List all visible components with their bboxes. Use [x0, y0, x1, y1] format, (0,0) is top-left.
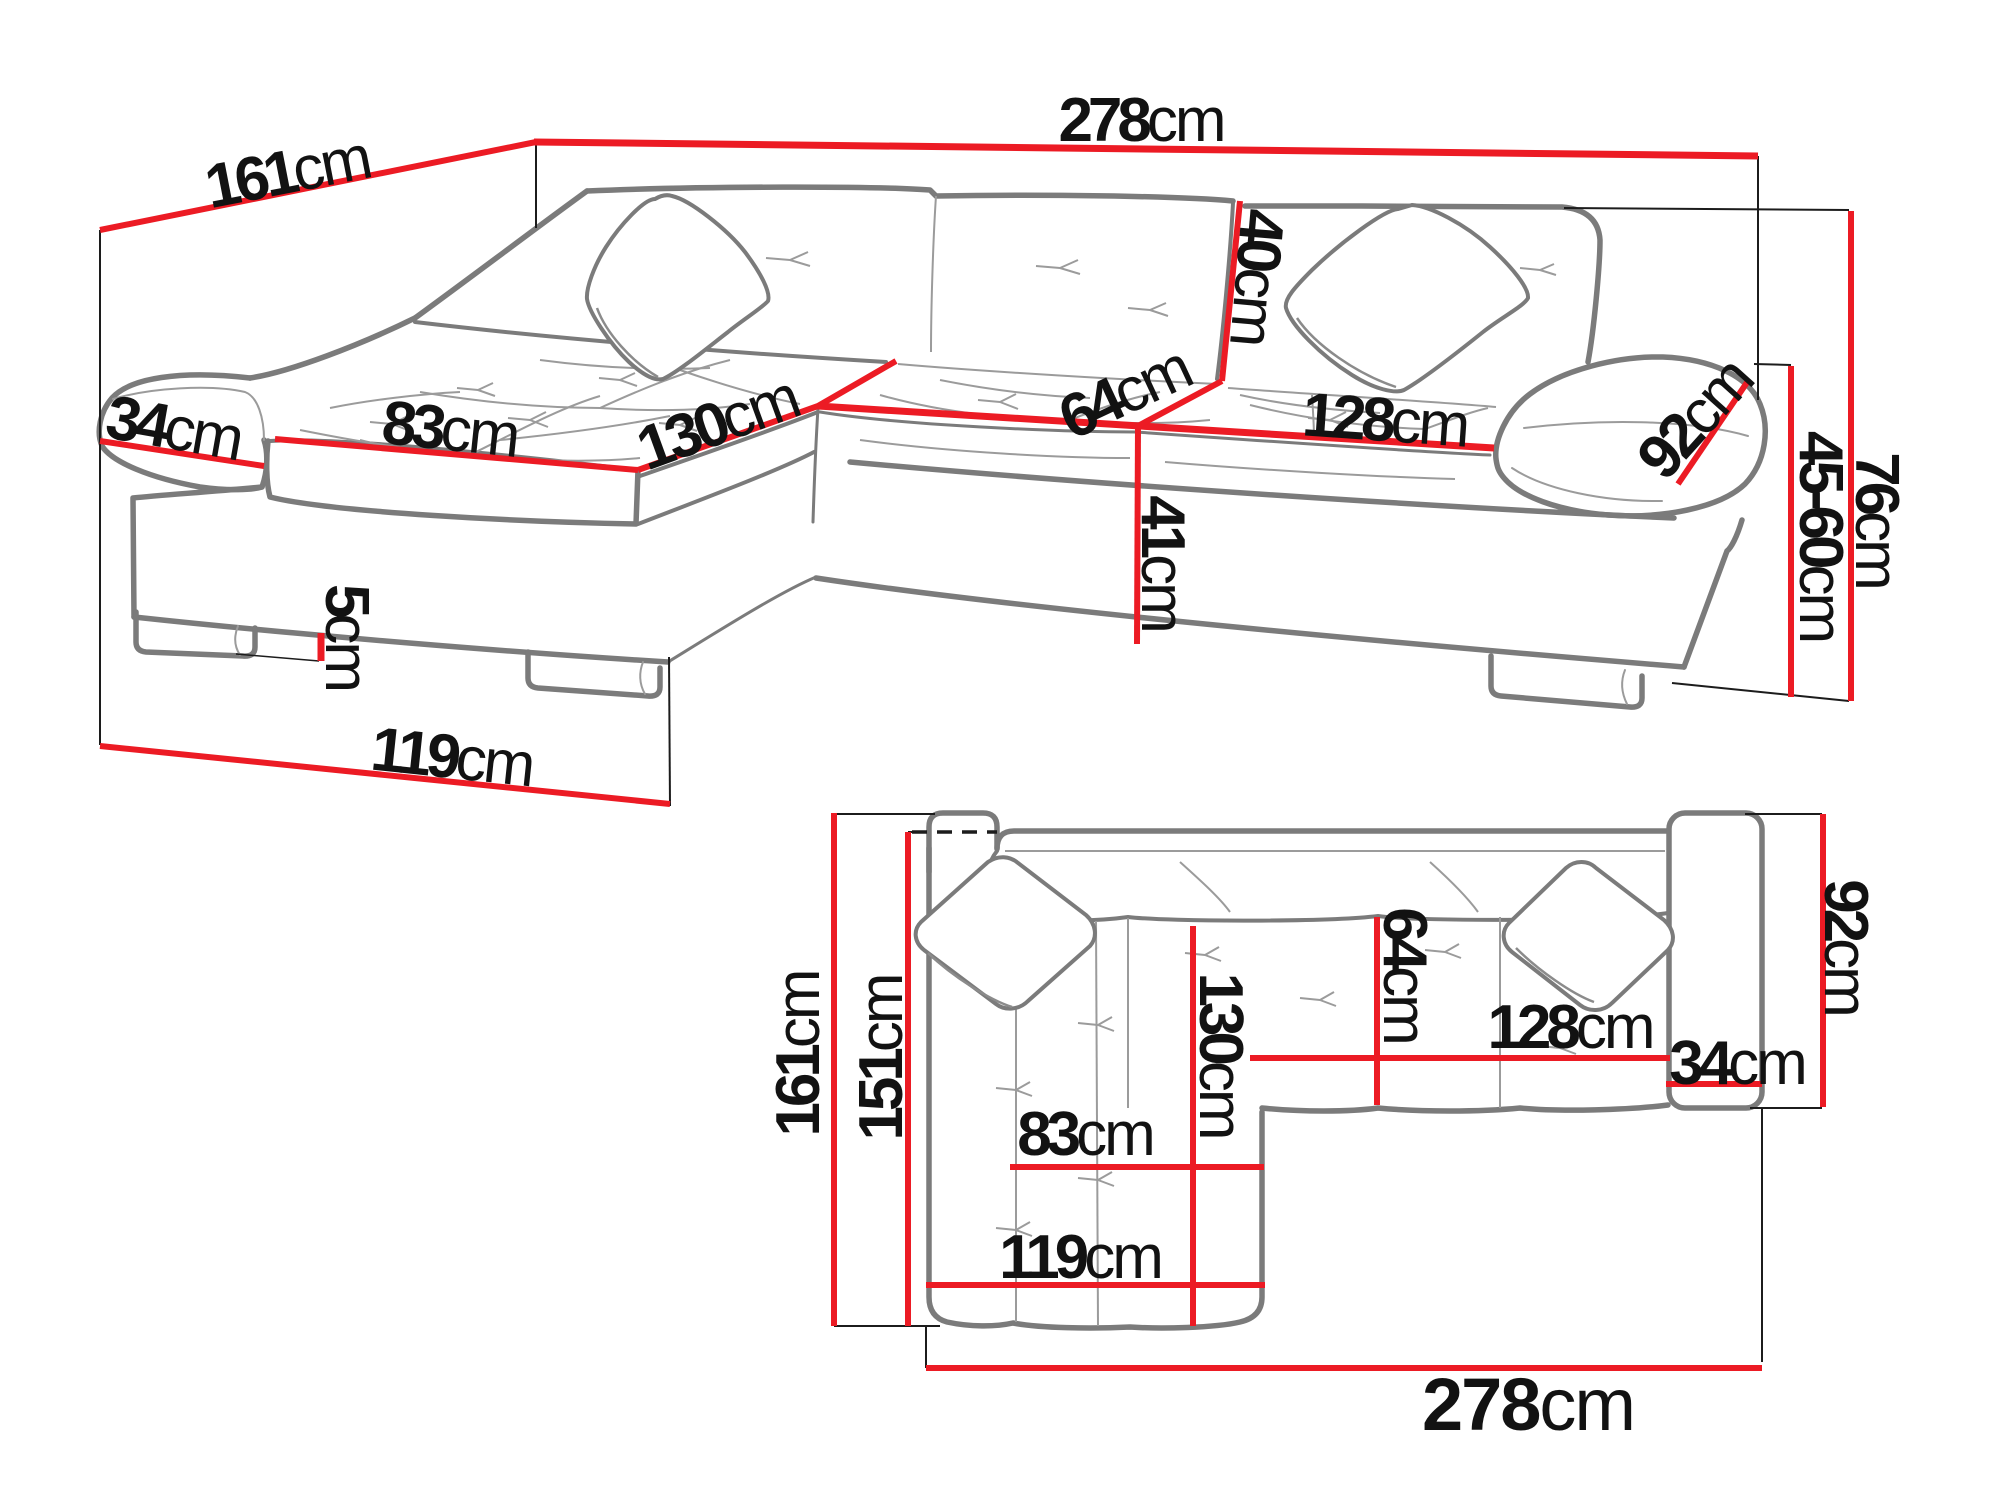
svg-text:128cm: 128cm	[1487, 993, 1652, 1062]
svg-text:41cm: 41cm	[1128, 495, 1197, 631]
svg-text:45-60cm: 45-60cm	[1786, 431, 1855, 641]
svg-text:128cm: 128cm	[1300, 380, 1470, 460]
svg-text:161cm: 161cm	[764, 971, 833, 1136]
svg-text:5cm: 5cm	[312, 584, 381, 690]
svg-text:278cm: 278cm	[1422, 1363, 1634, 1446]
svg-text:83cm: 83cm	[379, 388, 521, 471]
svg-text:34cm: 34cm	[1669, 1029, 1805, 1098]
svg-text:151cm: 151cm	[847, 975, 916, 1140]
svg-text:40cm: 40cm	[1216, 206, 1297, 347]
svg-text:278cm: 278cm	[1058, 86, 1223, 155]
svg-text:119cm: 119cm	[999, 1223, 1161, 1292]
svg-text:64cm: 64cm	[1370, 907, 1439, 1043]
svg-text:130cm: 130cm	[1186, 972, 1255, 1137]
svg-text:92cm: 92cm	[1811, 879, 1880, 1015]
svg-text:83cm: 83cm	[1017, 1100, 1153, 1169]
